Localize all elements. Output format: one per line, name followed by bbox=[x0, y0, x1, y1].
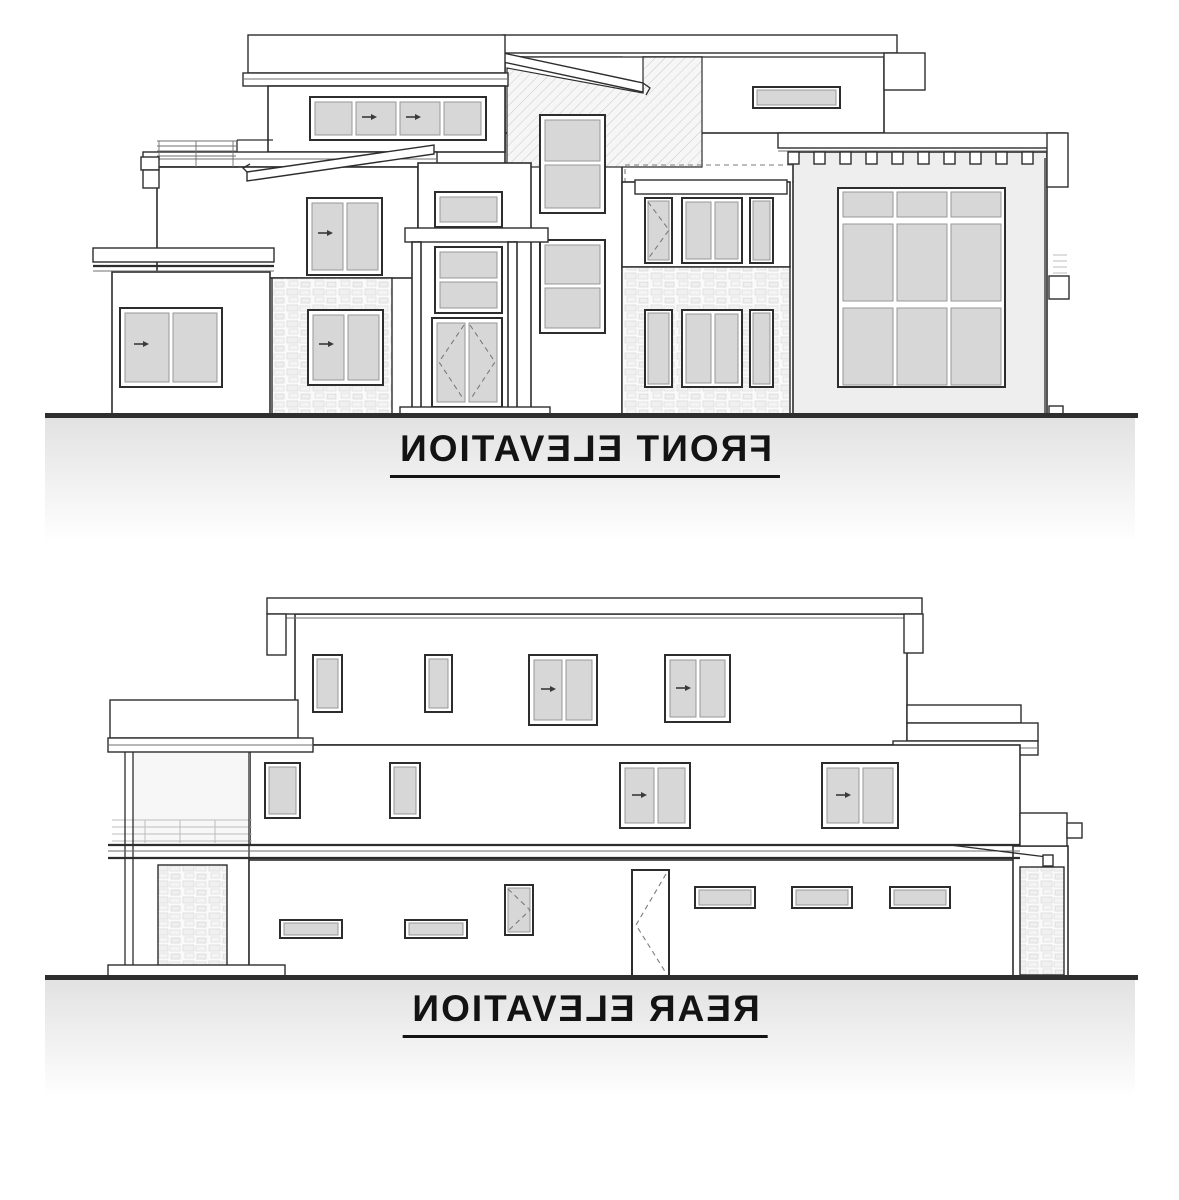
parapet-step bbox=[267, 614, 286, 655]
slot-window bbox=[753, 87, 840, 108]
window bbox=[540, 240, 605, 333]
window bbox=[750, 198, 773, 263]
casement-window bbox=[645, 198, 672, 263]
window bbox=[307, 198, 382, 275]
window bbox=[822, 763, 898, 828]
rear-top-story bbox=[267, 598, 1038, 755]
window bbox=[405, 920, 467, 938]
flat-roof-parapet bbox=[248, 35, 505, 73]
front-clerestory-block bbox=[243, 35, 508, 152]
wall-protrusion bbox=[1067, 823, 1082, 838]
window bbox=[265, 763, 300, 818]
roof-corner-box bbox=[1020, 813, 1067, 846]
window bbox=[390, 763, 420, 818]
window bbox=[750, 310, 773, 387]
window bbox=[645, 310, 672, 387]
balcony-recess bbox=[133, 752, 250, 845]
rear-elevation-label: REAR ELEVATION bbox=[402, 988, 767, 1038]
balcony-roof bbox=[110, 700, 298, 738]
garage-door bbox=[838, 188, 1005, 387]
front-bay-block bbox=[622, 165, 797, 415]
window bbox=[682, 198, 742, 263]
stone-pier bbox=[1020, 867, 1064, 975]
ledge bbox=[143, 170, 159, 188]
parapet-step bbox=[884, 53, 925, 90]
window bbox=[120, 308, 222, 387]
roof-step-slab bbox=[907, 723, 1038, 741]
window bbox=[792, 887, 852, 908]
roof-fascia bbox=[243, 73, 508, 86]
window bbox=[308, 310, 383, 385]
rear-door bbox=[632, 870, 669, 977]
transom-window bbox=[435, 192, 502, 227]
parapet-corner bbox=[1047, 133, 1068, 187]
front-left-wing bbox=[93, 248, 274, 416]
flat-roof-parapet bbox=[503, 35, 897, 53]
window bbox=[695, 887, 755, 908]
ledge bbox=[1049, 276, 1069, 299]
window bbox=[529, 655, 597, 725]
flat-roof-parapet bbox=[778, 133, 1065, 148]
clerestory-window bbox=[310, 97, 486, 140]
window bbox=[435, 247, 502, 313]
side-railing bbox=[1053, 255, 1067, 273]
window bbox=[280, 920, 342, 938]
parapet-step bbox=[904, 614, 923, 653]
entry-canopy bbox=[405, 228, 548, 242]
casement-window bbox=[505, 885, 533, 935]
front-ground-line bbox=[45, 413, 1138, 418]
window bbox=[890, 887, 950, 908]
window bbox=[540, 115, 605, 213]
porch-column bbox=[508, 242, 517, 415]
entry-door bbox=[432, 318, 502, 407]
window-canopy bbox=[635, 180, 787, 194]
window bbox=[620, 763, 690, 828]
rear-ground-line bbox=[45, 975, 1138, 980]
roof-step-slab bbox=[907, 705, 1021, 723]
front-entry-tower bbox=[400, 163, 550, 416]
window bbox=[682, 310, 742, 387]
flat-roof-slab bbox=[93, 248, 274, 262]
window bbox=[425, 655, 452, 712]
window bbox=[313, 655, 342, 712]
window bbox=[665, 655, 730, 722]
porch-column bbox=[412, 242, 421, 415]
ledge bbox=[141, 157, 159, 170]
front-garage-block bbox=[778, 133, 1069, 415]
front-elevation-label: FRONT ELEVATION bbox=[390, 428, 780, 478]
flat-roof-parapet bbox=[267, 598, 922, 614]
stone-pier bbox=[158, 865, 227, 975]
